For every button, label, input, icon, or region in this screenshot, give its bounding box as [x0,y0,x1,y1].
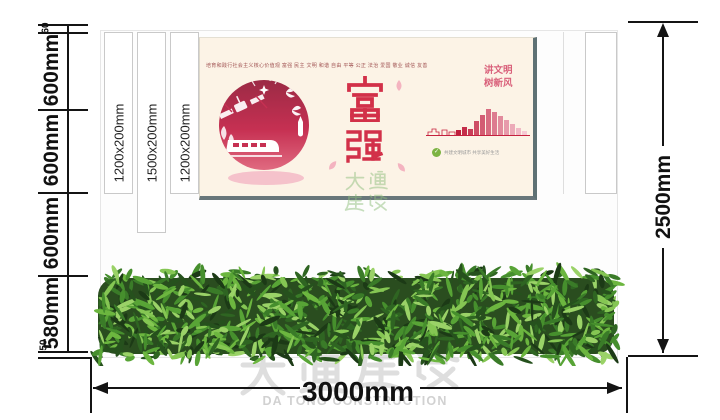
arrow-left-icon [93,382,108,394]
dim-label-600-2: 600mm [40,114,64,186]
pink-sprig-icon [392,78,406,92]
width-dim-line [93,387,300,389]
hedge-plants [86,262,626,366]
arrow-up-icon [657,23,669,37]
skyline-art [426,108,530,138]
right-post [585,32,617,194]
pink-sprig-icon [394,160,408,174]
dim-label-60: 60 [41,22,52,33]
wall-inner-line [563,32,564,194]
dim-tick [38,192,88,194]
slat-left-2: 1500x200mm [137,32,166,233]
slogan-line-1: 讲文明 [484,64,518,77]
slat-left-3: 1200x200mm [170,32,199,194]
poster-caption-row: ✓ 共建文明城市 共享美好生活 [432,148,499,157]
bottom-ext-line [628,355,698,357]
arrow-down-icon [657,339,669,353]
slat-size-label: 1200x200mm [111,104,126,183]
value-char-fu: 富 [342,76,388,122]
slat-size-label: 1500x200mm [144,104,159,183]
slat-size-label: 1200x200mm [177,104,192,183]
poster-slogan: 讲文明 树新风 [484,64,518,90]
right-ext-line [626,357,628,413]
left-dim-line [67,24,69,352]
height-dim-line [662,30,664,146]
dim-label-3000: 3000mm [302,376,414,408]
green-check-icon: ✓ [432,148,441,157]
dim-label-2500: 2500mm [652,155,676,239]
poster-caption: 共建文明城市 共享美好生活 [444,150,499,156]
value-char-qiang-text: 强 [342,128,388,174]
pink-sprig-icon [326,158,340,172]
poster-headline: 培育和践行社会主义核心价值观 富强 民主 文明 和谐 自由 平等 公正 法治 爱… [206,62,466,69]
height-dim-line [662,248,664,353]
arrow-right-icon [607,382,622,394]
stamp-text: 大通建设 [344,170,390,216]
papercut-circle-art [212,74,316,188]
slat-left-1: 1200x200mm [104,32,133,194]
left-ext-line [38,357,91,359]
width-dim-line [420,387,622,389]
slogan-line-2: 树新风 [484,77,518,90]
dim-tick [38,109,88,111]
dim-label-50: 50 [39,339,50,350]
dim-label-600-1: 600mm [40,34,64,106]
stamp-watermark: 大通建设 [344,170,390,216]
value-char-fu-text: 富 [342,76,388,122]
signage-wall-drawing: 1200x200mm 1500x200mm 1200x200mm 培育和践行社会… [0,0,720,420]
value-char-qiang: 强 [342,128,388,174]
left-ext-line [90,357,92,413]
dim-label-580: 580mm [40,277,64,349]
dim-tick [38,351,88,353]
dim-label-600-3: 600mm [40,197,64,269]
